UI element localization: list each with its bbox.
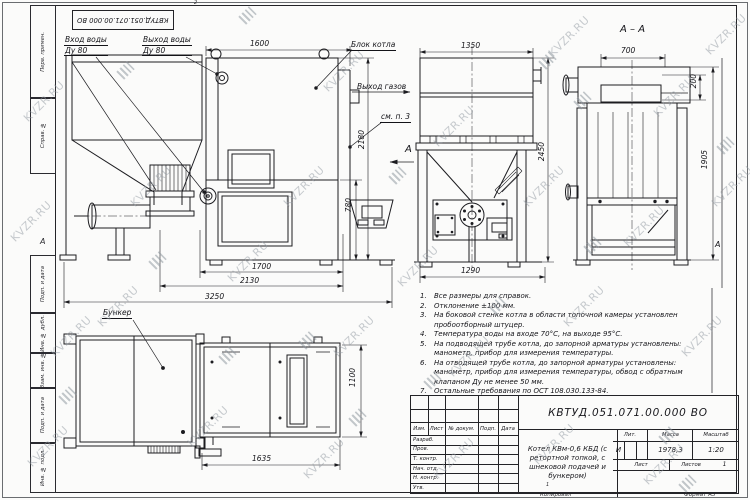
title-block: Изм. Лист № докум. Подп. Дата Разраб. Пр…: [410, 395, 739, 494]
margin-cell-perv-primen: Перв. примен.: [30, 5, 56, 99]
margin-cell-sprav-no: Справ. №: [30, 97, 56, 174]
tb-col-podp: Подп.: [478, 422, 498, 435]
margin-cell-inv-podl: Инв. № подл.: [30, 442, 56, 493]
tb-row-prov: Пров.: [411, 445, 447, 455]
tb-designation: КВТУД.051.071.00.000 ВО: [518, 396, 738, 430]
tb-scale-value: 1:20: [692, 441, 739, 459]
tb-col-data: Дата: [498, 422, 518, 435]
margin-cell-vzam-inv: Взам. инв. №: [30, 352, 56, 389]
tb-lit-empty2: [636, 441, 648, 459]
tb-col-docnum: № докум.: [445, 422, 478, 435]
zone-marker-left: А: [40, 237, 45, 246]
tb-product-name: Котел КВм-0,6 КБД (с ретортной топкой, с…: [518, 429, 618, 497]
margin-cell-podp-data-1: Подп. и дата: [30, 255, 56, 314]
margin-cell-inv-dubl: Инв. № дубл.: [30, 312, 56, 354]
tb-col-list: Лист: [428, 422, 445, 435]
tb-row-tkontr: Т. контр.: [411, 454, 447, 464]
margin-cell-podp-data-2: Подп. и дата: [30, 387, 56, 444]
tb-row-razrab: Разраб.: [411, 435, 447, 445]
tb-row-nkontr: Н. контр.: [411, 473, 447, 483]
tb-sheets-value: 1: [711, 459, 738, 470]
tb-row-nachotd: Нач. отд.: [411, 464, 447, 474]
tb-mass-value: 1978,3: [647, 441, 693, 459]
tb-col-izm: Изм.: [411, 422, 428, 435]
tb-row-utv: Утв.: [411, 483, 447, 493]
tb-sheets-label: Листов: [669, 459, 712, 470]
drawing-sheet: { "watermark": { "text": "KVZR.RU" }, "t…: [0, 0, 750, 500]
top-designation-stamp: КВТУД.051.071.00.000 ВО: [72, 10, 174, 30]
tb-sheet-label: Лист: [613, 459, 669, 470]
top-designation-text: КВТУД.051.071.00.000 ВО: [77, 16, 168, 24]
